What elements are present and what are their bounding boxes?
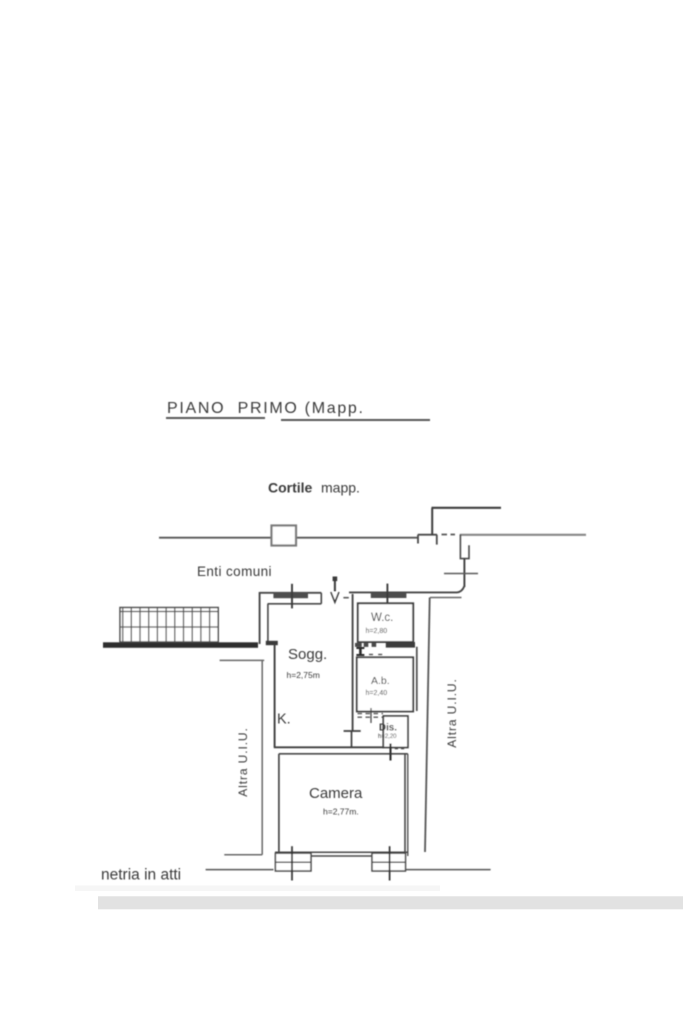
svg-text:Cortile: Cortile <box>268 480 313 496</box>
svg-text:K.: K. <box>277 712 291 728</box>
svg-text:h=2,40: h=2,40 <box>366 690 388 697</box>
svg-text:h=2,80: h=2,80 <box>366 628 388 635</box>
svg-text:h=2,77m.: h=2,77m. <box>323 807 359 817</box>
svg-text:Altra U.I.U.: Altra U.I.U. <box>445 678 459 747</box>
svg-text:h=2,75m: h=2,75m <box>287 670 320 680</box>
svg-text:Dis.: Dis. <box>379 723 397 734</box>
svg-text:Camera: Camera <box>309 785 363 802</box>
svg-text:PIANO PRIMO (Mapp.: PIANO PRIMO (Mapp. <box>167 400 365 417</box>
svg-text:Enti comuni: Enti comuni <box>197 564 272 579</box>
svg-text:mapp.: mapp. <box>321 480 360 496</box>
svg-text:Sogg.: Sogg. <box>288 646 327 663</box>
svg-text:h=2,20: h=2,20 <box>378 734 397 740</box>
svg-text:A.b.: A.b. <box>371 675 390 687</box>
svg-text:Altra U.I.U.: Altra U.I.U. <box>236 727 250 796</box>
svg-text:W.c.: W.c. <box>371 612 393 624</box>
svg-text:netria in atti: netria in atti <box>101 867 181 884</box>
